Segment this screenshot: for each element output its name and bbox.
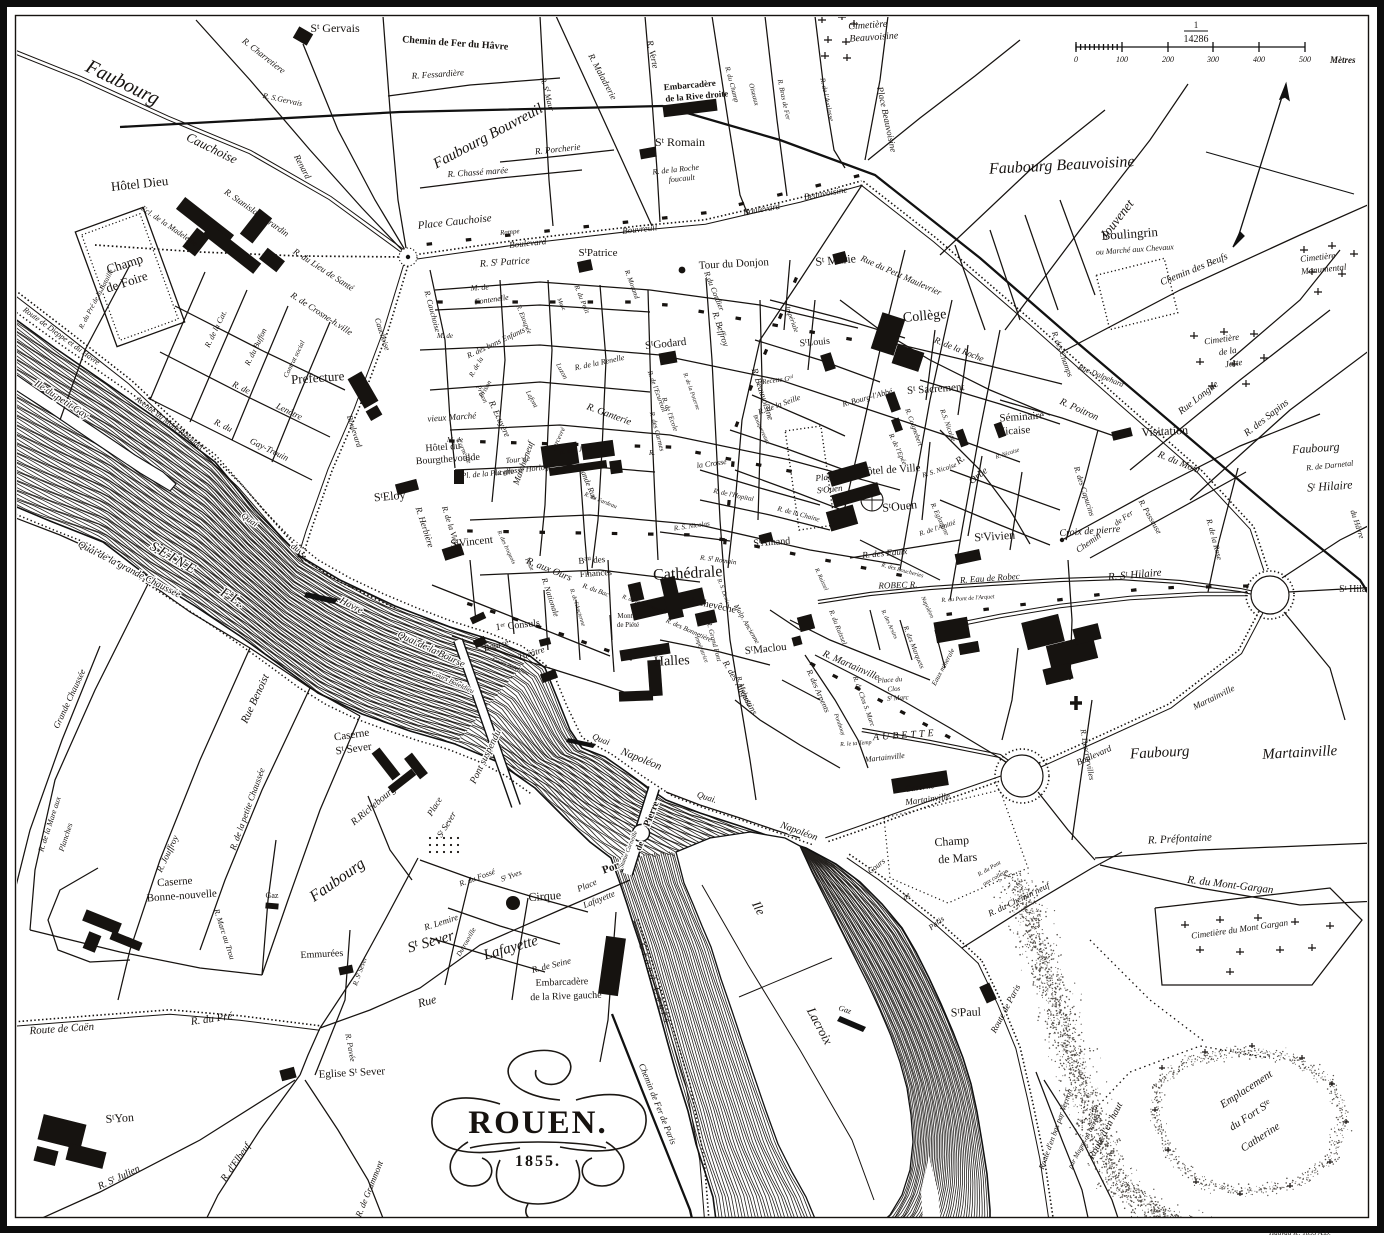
svg-text:M. de: M. de — [469, 282, 489, 292]
svg-text:Mètres: Mètres — [1329, 55, 1356, 65]
svg-text:0: 0 — [1074, 55, 1078, 64]
svg-text:Bau des: Bau des — [578, 553, 606, 566]
svg-text:Embarcadère: Embarcadère — [535, 976, 589, 989]
svg-text:500: 500 — [1299, 55, 1311, 64]
svg-text:Halles: Halles — [654, 653, 691, 670]
svg-text:de Piété: de Piété — [617, 621, 639, 629]
svg-text:Caserne: Caserne — [157, 875, 193, 889]
svg-text:1: 1 — [1194, 20, 1199, 30]
svg-text:Hauvau sc. 1855 A.D.: Hauvau sc. 1855 A.D. — [1268, 1229, 1331, 1236]
svg-text:Mont: Mont — [617, 612, 632, 620]
svg-text:200: 200 — [1162, 55, 1174, 64]
svg-text:ROBEC R.: ROBEC R. — [877, 579, 917, 590]
svg-text:StEloy: StEloy — [373, 488, 406, 505]
svg-text:Faubourg: Faubourg — [1129, 743, 1191, 762]
svg-text:Nicaise: Nicaise — [997, 424, 1031, 438]
svg-text:R.: R. — [648, 449, 655, 457]
svg-text:100: 100 — [1116, 55, 1128, 64]
svg-text:Champ: Champ — [934, 833, 970, 849]
svg-text:Visitation: Visitation — [1141, 423, 1188, 439]
svg-text:300: 300 — [1206, 55, 1219, 64]
svg-text:StVivien: StVivien — [974, 528, 1016, 545]
svg-text:StPaul: StPaul — [950, 1004, 981, 1019]
svg-text:14286: 14286 — [1184, 34, 1209, 45]
svg-text:Cirque: Cirque — [528, 888, 562, 904]
svg-text:M. de: M. de — [436, 332, 453, 340]
svg-text:de Mars: de Mars — [938, 850, 978, 867]
svg-text:St Marc: St Marc — [887, 693, 910, 703]
svg-text:400: 400 — [1253, 55, 1265, 64]
svg-text:Cathédrale: Cathédrale — [653, 563, 723, 584]
svg-text:ROUEN.: ROUEN. — [468, 1105, 607, 1141]
svg-text:Emmurées: Emmurées — [300, 948, 343, 961]
svg-text:Clos: Clos — [887, 685, 901, 694]
svg-text:StYon: StYon — [105, 1110, 134, 1126]
svg-text:1855.: 1855. — [515, 1153, 561, 1170]
svg-text:Gaz: Gaz — [266, 891, 279, 900]
svg-text:StPatrice: StPatrice — [579, 246, 618, 259]
